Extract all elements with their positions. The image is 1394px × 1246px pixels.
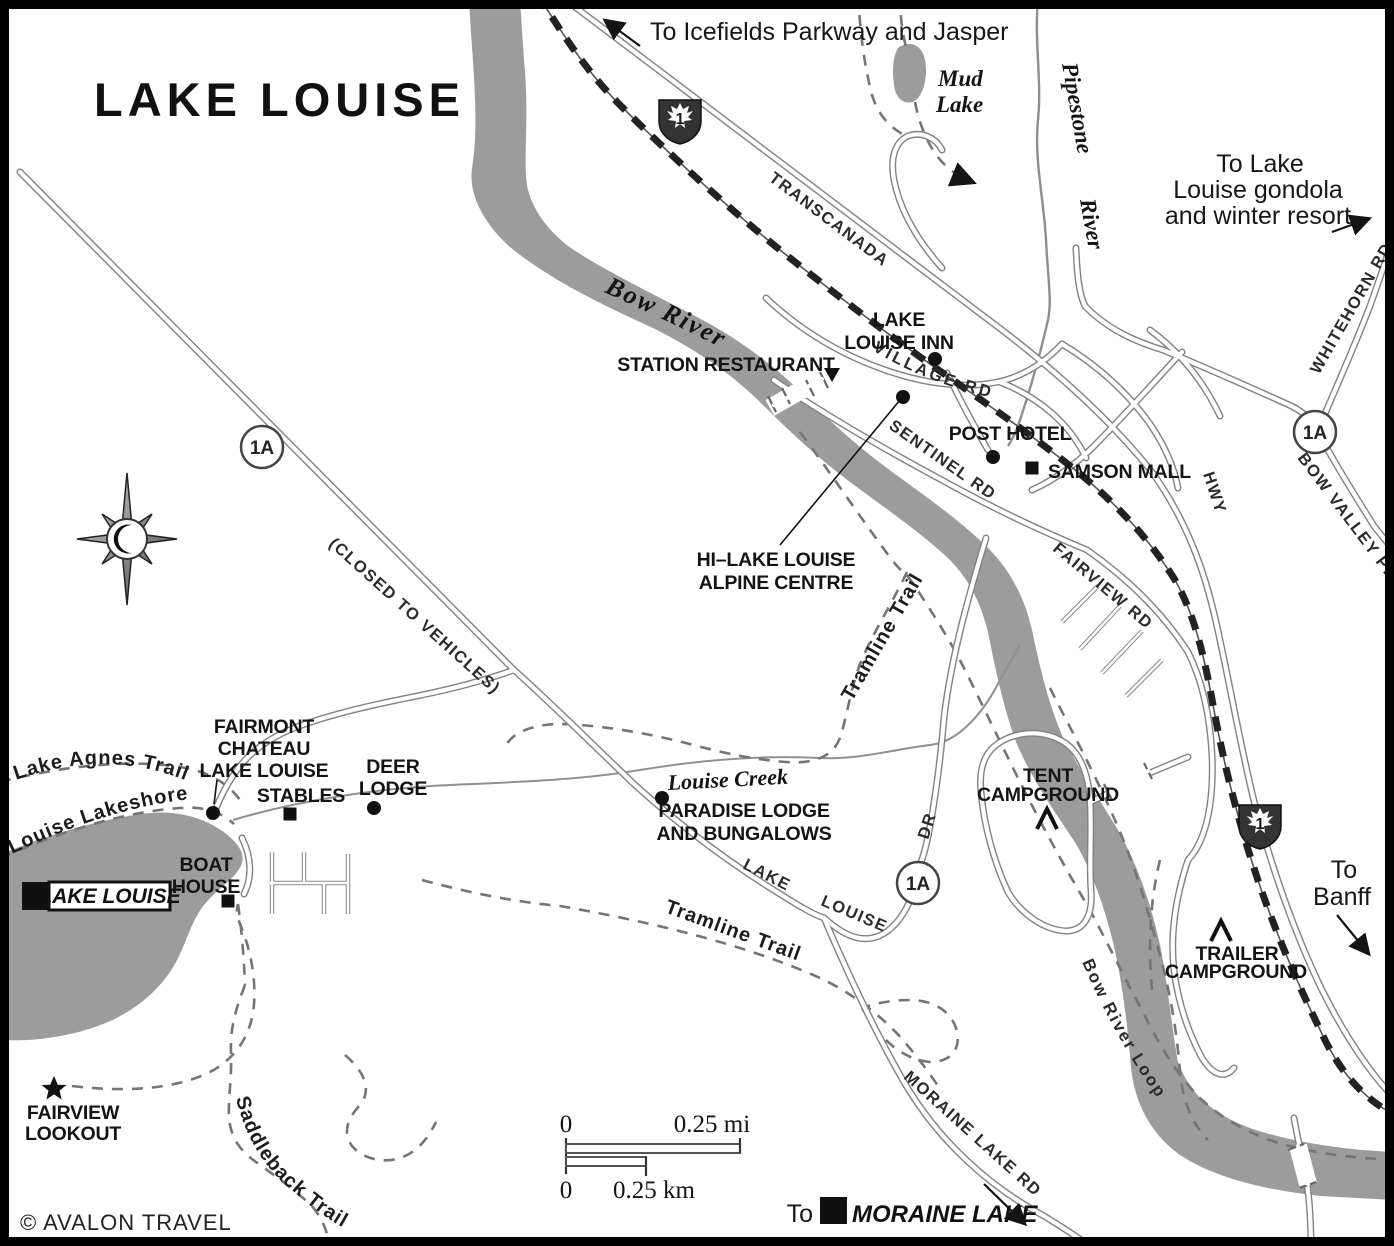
post-hotel-marker xyxy=(986,450,1000,464)
stables-label: STABLES xyxy=(257,785,345,807)
scale-zero-km: 0 xyxy=(560,1177,573,1204)
fairview-lookout-label-2: LOOKOUT xyxy=(25,1123,121,1145)
deer-lodge-marker xyxy=(367,801,381,815)
moraine-crescent-box xyxy=(820,1197,847,1224)
icefields-direction: To Icefields Parkway and Jasper xyxy=(650,18,1009,46)
gondola-direction-1: To Lake xyxy=(1216,150,1304,178)
deer-lodge-label-1: DEER xyxy=(366,756,419,778)
scale-km-bar xyxy=(566,1157,646,1166)
boat-house-label-1: BOAT xyxy=(180,854,233,876)
hi-lake-louise-label-1: HI–LAKE LOUISE xyxy=(697,549,856,571)
fairmont-label-3: LAKE LOUISE xyxy=(200,760,329,782)
mud-lake-label-1: Mud xyxy=(937,66,983,91)
moraine-direction-name: MORAINE LAKE xyxy=(852,1201,1038,1228)
lake-louise-box-text: LAKE LOUISE xyxy=(39,885,181,908)
lake-louise-inn-marker xyxy=(928,352,942,366)
scale-zero-mi: 0 xyxy=(560,1111,573,1138)
mud-lake-label-2: Lake xyxy=(935,92,983,117)
gondola-direction-2: Louise gondola xyxy=(1173,176,1343,204)
paradise-label-2: AND BUNGALOWS xyxy=(656,823,831,845)
hwy1-number: 1 xyxy=(1256,816,1265,833)
scale-km-label: 0.25 km xyxy=(613,1177,696,1204)
hwy1a-shield-east: 1A xyxy=(1294,411,1336,453)
hwy1-number: 1 xyxy=(676,111,685,128)
fairview-lookout-label-1: FAIRVIEW xyxy=(27,1102,120,1124)
hwy1a-shield-south: 1A xyxy=(897,862,939,904)
post-hotel-label: POST HOTEL xyxy=(949,423,1072,445)
gondola-direction-3: and winter resort xyxy=(1165,202,1351,230)
hwy1a-number: 1A xyxy=(250,438,275,459)
samson-mall-marker xyxy=(1026,462,1039,475)
samson-mall-label: SAMSON MALL xyxy=(1048,461,1191,483)
trailer-campground-label-2: CAMPGROUND xyxy=(1165,961,1307,983)
lake-louise-map: 1 1 1A 1A 1A Bow River Pipestone River M… xyxy=(0,0,1394,1246)
fairmont-label-2: CHATEAU xyxy=(218,738,310,760)
lake-louise-box-label: LAKE LOUISE xyxy=(22,882,182,910)
hwy1a-number: 1A xyxy=(906,874,931,895)
station-restaurant-label: STATION RESTAURANT xyxy=(617,354,835,376)
stables-marker xyxy=(284,808,297,821)
fairmont-chateau-marker xyxy=(206,806,220,820)
hi-lake-louise-label-2: ALPINE CENTRE xyxy=(699,572,854,594)
deer-lodge-label-2: LODGE xyxy=(359,778,428,800)
copyright: © AVALON TRAVEL xyxy=(20,1210,232,1235)
banff-direction-2: Banff xyxy=(1313,883,1371,911)
lake-louise-inn-label-2: LOUISE INN xyxy=(844,332,954,354)
boat-house-label-2: HOUSE xyxy=(172,876,241,898)
banff-direction-1: To xyxy=(1331,856,1357,884)
tent-campground-label-2: CAMPGROUND xyxy=(977,784,1119,806)
fairmont-label-1: FAIRMONT xyxy=(214,716,315,738)
paradise-label-1: PARADISE LODGE xyxy=(658,800,829,822)
hwy1a-shield-west: 1A xyxy=(241,426,283,468)
scale-mi-bar xyxy=(566,1144,740,1153)
moraine-direction-prefix: To xyxy=(787,1200,813,1228)
scale-mi-label: 0.25 mi xyxy=(674,1111,750,1138)
hwy1a-number: 1A xyxy=(1303,423,1328,444)
page-title: LAKE LOUISE xyxy=(94,73,465,126)
lake-louise-inn-label-1: LAKE xyxy=(873,309,925,331)
